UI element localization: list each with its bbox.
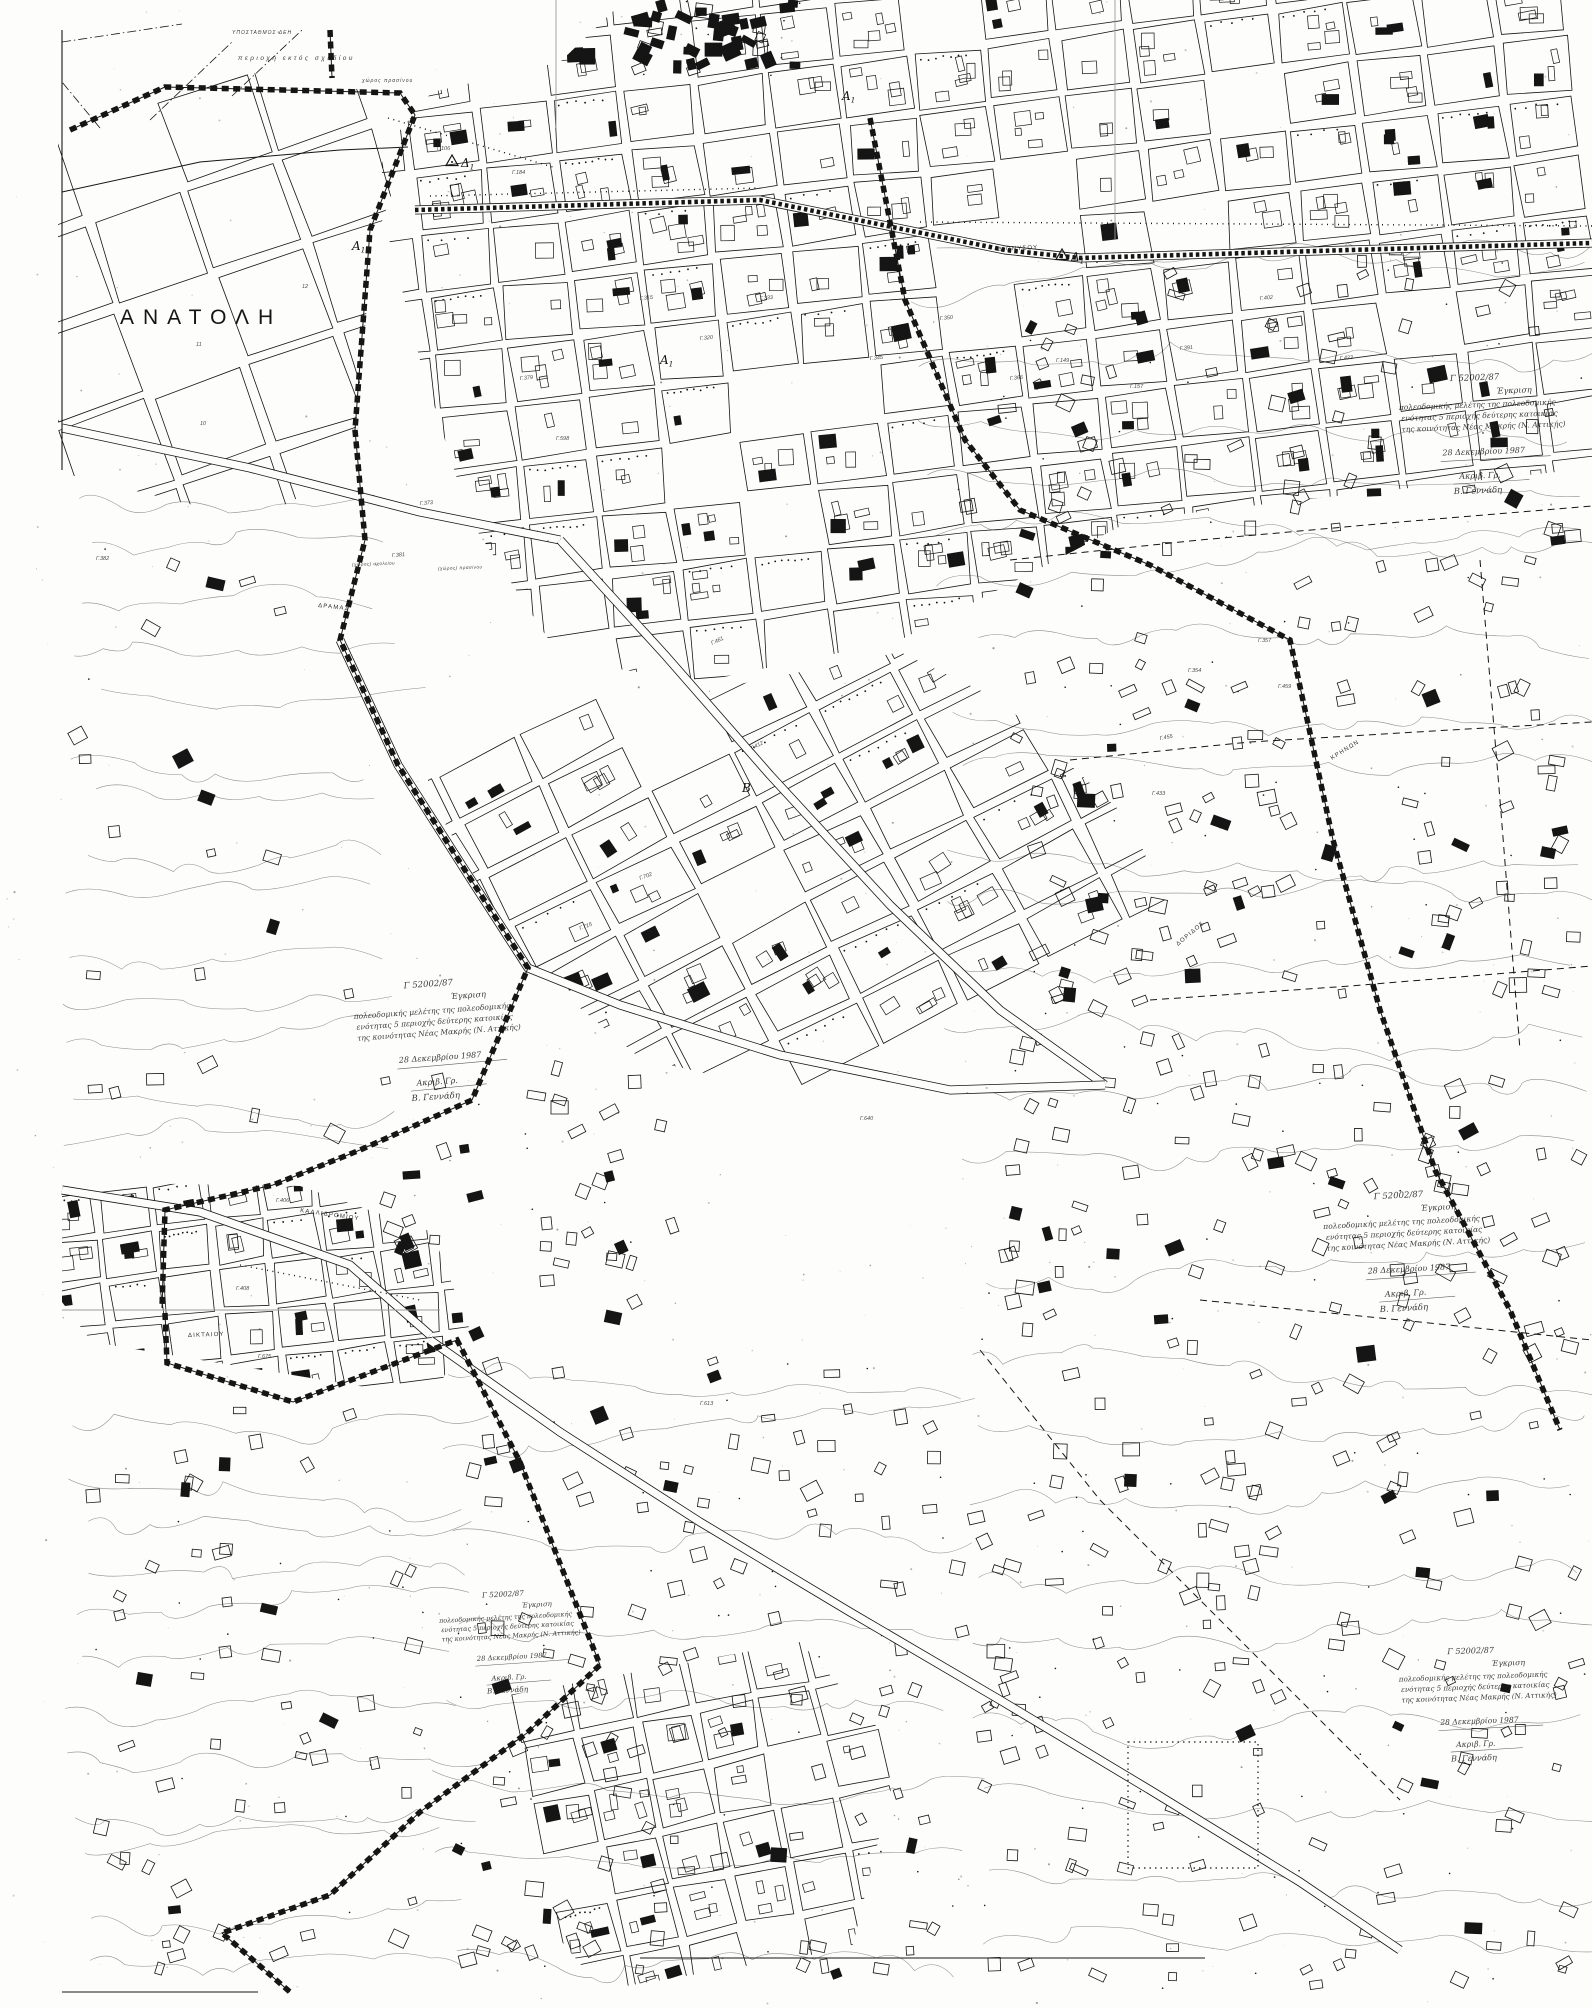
stamp-line: Β. Γεννάδη	[486, 1684, 529, 1695]
parcel-number-label: Γ.379	[520, 375, 534, 382]
street-labels: ΔΙΟΝΥΣΟΥΔΙΚΤΑΙΟΥΔΡΑΜΑΣΔΟΡΙΔΟΣΚΡΗΝΩΝΚΑΛΛΙ…	[188, 245, 1361, 1339]
stamp-line: Ακριβ. Γρ.	[1384, 1288, 1427, 1299]
stamp-line: Β. Γεννάδη	[1378, 1302, 1429, 1316]
parcel-number-label: Γ.106	[437, 146, 451, 152]
approval-stamp: Γ 52002/87Έγκρισηπολεοδομικής μελέτης τη…	[1397, 1644, 1560, 1766]
plan-boundary-line	[70, 30, 1560, 1992]
survey-marker-label: A1	[351, 239, 365, 255]
map-note-label: χώρος πρασίνου	[361, 77, 413, 84]
street-name-label: ΔΙΚΤΑΙΟΥ	[188, 1332, 225, 1339]
stamp-line: Β. Γεννάδη	[1453, 484, 1504, 497]
area-label-anatoli: ΑΝΑΤΟΛΗ	[120, 306, 282, 330]
parcel-number-label: Γ.423	[1340, 355, 1355, 362]
parcel-number-label: Γ.354	[1188, 668, 1201, 674]
stamp-line: Έγκριση	[1496, 385, 1532, 395]
street-name-label: ΔΡΑΜΑΣ	[318, 603, 350, 612]
parcel-number-label: Γ.320	[700, 335, 715, 342]
map-note-label: ΥΠΟΣΤΑΘΜΟΣ ΔΕΗ	[232, 30, 292, 36]
map-note-label: περιοχή εκτός σχεδίου	[238, 54, 355, 62]
street-name-label: ΚΡΗΝΩΝ	[1330, 739, 1361, 761]
parcel-number-label: Γ.598	[556, 436, 570, 442]
stamp-line: Γ 52002/87	[1446, 1646, 1495, 1657]
stamp-line: Γ 52002/87	[402, 978, 453, 992]
approval-stamp: Γ 52002/87Έγκρισηπολεοδομικής μελέτης τη…	[437, 1586, 585, 1698]
parcel-number-label: Γ.459	[1278, 684, 1291, 690]
roads	[62, 24, 1592, 1950]
parcel-number-label: Γ.184	[512, 170, 525, 176]
stamp-line: 28 Δεκεμβρίου 1987	[1439, 1715, 1519, 1727]
parcel-number-label: Γ.315	[640, 295, 655, 302]
parcel-number-label: 12	[302, 284, 308, 290]
parcel-number-label: Γ.408	[236, 1286, 250, 1292]
street-name-label: ΚΑΛΛΙΔΡΟΜΙΟΥ	[300, 1208, 360, 1222]
stamp-line: Ακριβ. Γρ.	[1458, 470, 1501, 480]
parcel-number-label: Γ.613	[700, 1401, 714, 1407]
parcel-number-label: Γ.406	[276, 1198, 290, 1204]
contour-lines	[63, 240, 1592, 1983]
stamp-line: 28 Δεκεμβρίου 1987	[476, 1650, 548, 1663]
survey-marker-label: Δ1	[460, 156, 474, 172]
parcel-number-label: Γ.455	[1159, 734, 1174, 742]
parcel-number-label: Γ.366	[1010, 375, 1025, 382]
parcel-number-label: Γ.345	[870, 355, 885, 362]
parcel-number-label: Γ.373	[420, 500, 434, 507]
map-note-label: (χώρος) πρασίνου	[438, 563, 483, 571]
stamp-line: Έγκριση	[1491, 1658, 1525, 1668]
parcel-number-label: Γ.461	[710, 636, 724, 647]
scan-noise	[6, 1, 1591, 2004]
map-drawing: ΔΙΟΝΥΣΟΥΔΙΚΤΑΙΟΥΔΡΑΜΑΣΔΟΡΙΔΟΣΚΡΗΝΩΝΚΑΛΛΙ…	[0, 0, 1592, 2008]
stamp-line: Ακριβ. Γρ.	[1455, 1739, 1496, 1749]
parcel-number-label: 10	[200, 421, 207, 427]
scattered-buildings	[68, 0, 1587, 1990]
stamp-line: Β. Γεννάδη	[410, 1090, 461, 1104]
parcel-number-label: Γ.402	[1260, 295, 1274, 302]
stamp-line: Γ 52002/87	[1373, 1190, 1424, 1203]
parcel-number-label: Γ.675	[258, 1354, 272, 1360]
parcel-number-label: Γ.382	[96, 556, 109, 562]
stamp-line: Έγκριση	[450, 990, 486, 1001]
parcel-number-label: Γ.157	[1130, 384, 1144, 390]
parcel-number-label: Γ.702	[639, 872, 653, 882]
survey-marker-label: A1	[841, 89, 855, 105]
stamp-line: Β. Γεννάδη	[1450, 1753, 1497, 1764]
survey-marker-label: B	[741, 781, 751, 795]
stamp-line: Γ 52002/87	[1449, 372, 1500, 384]
parcel-number-label: Γ.350	[940, 315, 955, 322]
parcel-number-label: Γ.433	[1152, 791, 1166, 797]
survey-marker-label: Δ1	[1070, 250, 1084, 266]
parcel-number-label: Γ.381	[392, 552, 406, 559]
map-sheet: ΔΙΟΝΥΣΟΥΔΙΚΤΑΙΟΥΔΡΑΜΑΣΔΟΡΙΔΟΣΚΡΗΝΩΝΚΑΛΛΙ…	[0, 0, 1592, 2008]
parcel-number-label: Γ.412	[750, 740, 764, 751]
parcel-number-label: 11	[196, 342, 202, 348]
parcel-number-label: Γ.357	[1258, 638, 1272, 644]
stamp-line: Ακριβ. Γρ.	[415, 1076, 458, 1088]
street-name-label: ΔΟΡΙΔΟΣ	[1175, 921, 1206, 948]
stamp-line: Έγκριση	[1420, 1202, 1456, 1213]
stamp-line: Ακριβ. Γρ.	[490, 1673, 527, 1683]
parcel-number-label: Γ.391	[1180, 345, 1194, 352]
stamp-line: 28 Δεκεμβρίου 1987	[1441, 446, 1526, 458]
parcel-number-label: Γ.640	[860, 1116, 874, 1122]
stamp-line: Γ 52002/87	[481, 1588, 525, 1599]
parcel-number-label: Γ.149	[1056, 358, 1069, 364]
parcel-number-label: Γ.333	[760, 295, 775, 302]
survey-marker-label: A1	[659, 353, 673, 369]
stamp-line: Έγκριση	[521, 1600, 551, 1610]
